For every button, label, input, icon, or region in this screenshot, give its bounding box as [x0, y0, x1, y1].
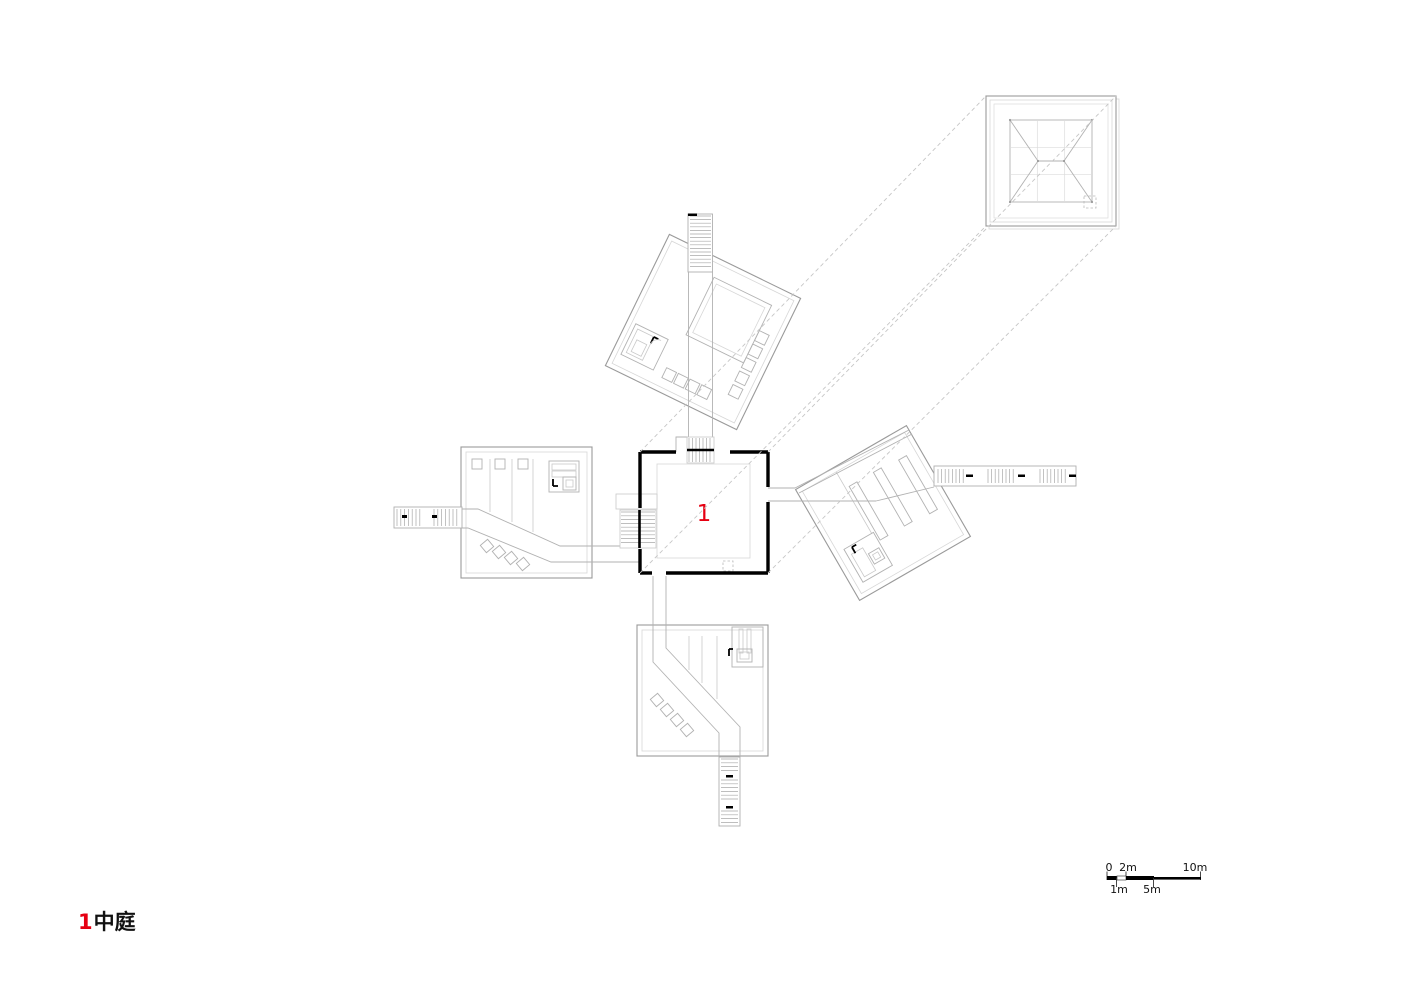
- caption-number: 1: [78, 910, 93, 934]
- roof-plan: [986, 96, 1119, 229]
- bridge-direction-mark: [966, 475, 973, 478]
- courtyard-hatch-marker: [723, 561, 733, 571]
- stair-direction-mark: [688, 214, 697, 217]
- scale-label-1m: 1m: [1110, 883, 1128, 896]
- south-stair: [719, 757, 740, 826]
- right-wing: [796, 426, 971, 601]
- bridge-direction-mark: [1069, 475, 1076, 478]
- central-courtyard: 1: [616, 437, 768, 573]
- courtyard-label: 1: [697, 501, 712, 527]
- stair-direction-mark: [432, 515, 437, 518]
- west-stair: [394, 507, 462, 528]
- left-wing: [461, 447, 592, 578]
- caption-text: 中庭: [94, 910, 136, 934]
- stair-direction-mark: [726, 775, 733, 778]
- caption: 1中庭: [78, 910, 136, 934]
- courtyard-west-stair: [616, 494, 657, 548]
- scale-bar: 0 2m 10m 1m 5m: [1106, 861, 1208, 896]
- scale-label-2m: 2m: [1119, 861, 1137, 874]
- scale-label-10m: 10m: [1183, 861, 1208, 874]
- architectural-plan-page: 1 0 2m 10m 1m 5m 1中庭: [0, 0, 1416, 1000]
- scale-label-5m: 5m: [1143, 883, 1161, 896]
- stair-direction-mark: [402, 515, 407, 518]
- bridge-direction-mark: [1018, 475, 1025, 478]
- svg-text:1中庭: 1中庭: [78, 910, 136, 934]
- east-bridge: [934, 466, 1076, 486]
- stair-direction-mark: [726, 806, 733, 809]
- site-plan-drawing: 1 0 2m 10m 1m 5m 1中庭: [0, 0, 1416, 1000]
- bottom-wing: [637, 576, 768, 757]
